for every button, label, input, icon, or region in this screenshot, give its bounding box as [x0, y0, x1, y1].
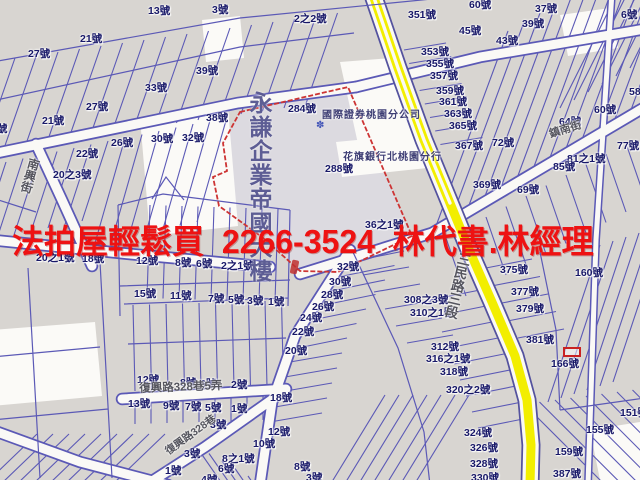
landmark-label-citibank: 花旗銀行北桃園分行 — [343, 148, 442, 163]
landmark-icon: ✽ — [316, 120, 324, 131]
street-label: 復興路328巷5弄 — [139, 377, 223, 396]
cadastral-map: 13號3號2之2號60號351號37號39號6號45號43號21號27號39號3… — [0, 0, 640, 480]
ad-banner: 法拍屋輕鬆買 2266-3524 林代書.林經理 — [12, 215, 594, 263]
street-label: 復興路328巷 — [162, 411, 219, 458]
landmark-label-securities: 國際證券桃園分公司 — [322, 106, 421, 121]
street-label: 南興街 — [17, 156, 43, 195]
street-label: 鎮南街 — [547, 116, 583, 141]
highlight-marker — [563, 347, 581, 357]
